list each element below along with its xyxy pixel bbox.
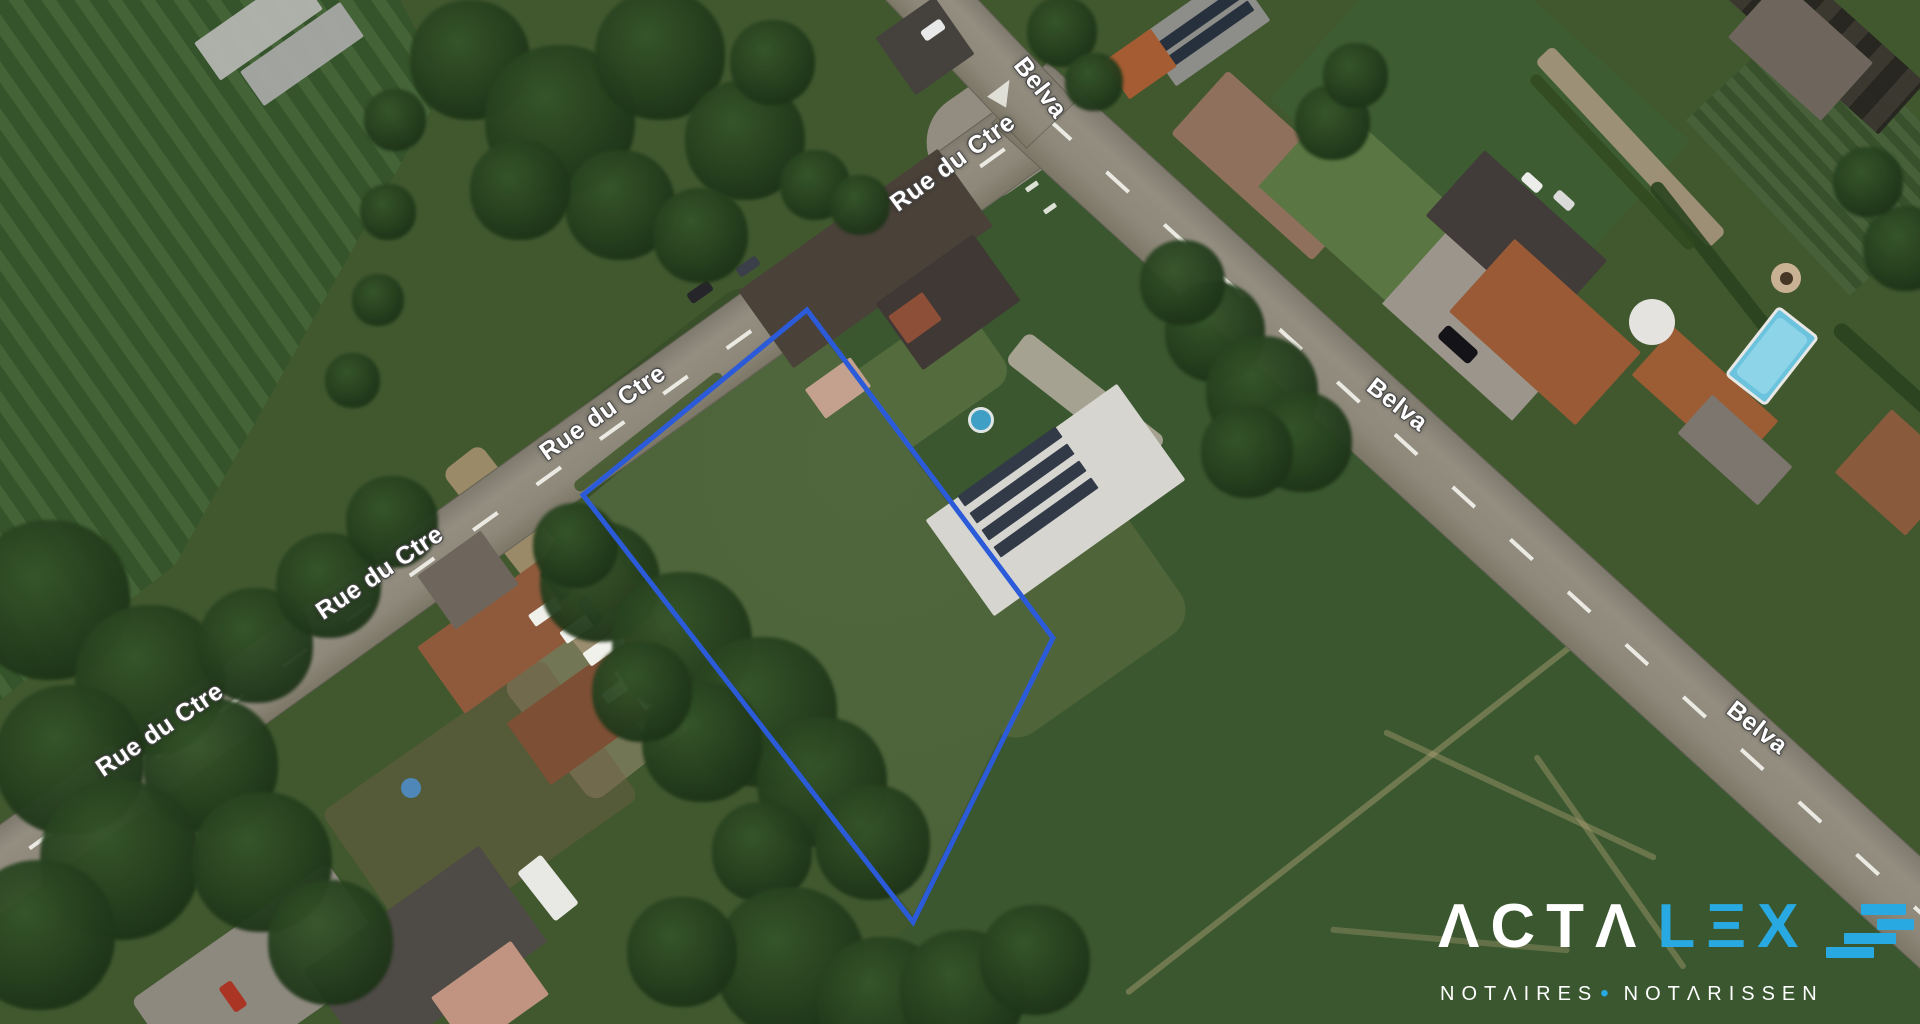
logo-wordmark-lex: LΞX (1657, 896, 1809, 958)
satellite-map-canvas[interactable]: Rue du Ctre Rue du Ctre Rue du Ctre Rue … (0, 0, 1920, 1024)
logo-bars-icon (1826, 904, 1914, 958)
logo-wordmark: ΛCTΛ LΞX (1438, 896, 1920, 962)
logo-subtitle-notaires: NOTΛIRES (1440, 983, 1598, 1006)
actalex-logo: ΛCTΛ LΞX NOTΛIRES • NOTΛRISSEN (1438, 896, 1920, 1016)
logo-subtitle: NOTΛIRES • NOTΛRISSEN (1440, 980, 1824, 1008)
logo-dot-separator: • (1600, 980, 1615, 1008)
parcel-outline (583, 310, 1053, 922)
logo-subtitle-notarissen: NOTΛRISSEN (1624, 983, 1824, 1006)
logo-wordmark-acta: ΛCTΛ (1438, 896, 1647, 958)
